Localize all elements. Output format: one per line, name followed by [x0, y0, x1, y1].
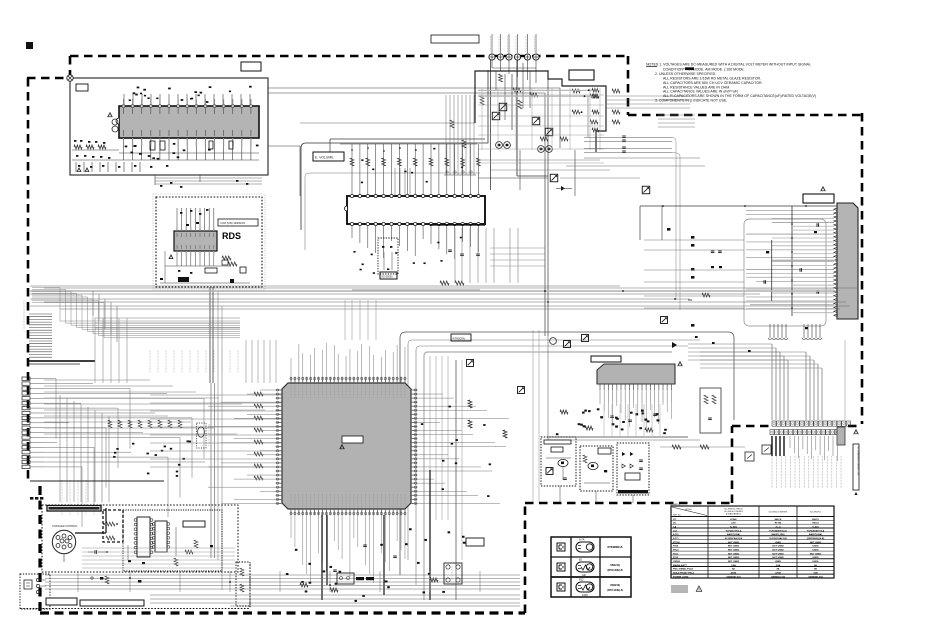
- svg-text:USED: USED: [812, 557, 818, 559]
- svg-text:ALL CAPACITORS ARE 50V CH UCV: ALL CAPACITORS ARE 50V CH UCV CERAMIC CA…: [663, 81, 763, 85]
- svg-text:UN4213): UN4213): [610, 584, 620, 587]
- svg-text:GR: GR: [582, 574, 586, 577]
- svg-text:CONDITION***TR MODE. AM: CONDITION***TR MODE. AM MODE. (:100 MODE…: [663, 67, 745, 71]
- svg-text:470M: 470M: [731, 572, 737, 575]
- svg-text:RTL2: RTL2: [673, 550, 679, 552]
- svg-text:0.8A: 0.8A: [776, 564, 781, 567]
- svg-text:USED: USED: [812, 546, 818, 548]
- svg-text:RT706: RT706: [673, 542, 680, 544]
- svg-text:TCF5060ET/V2-A: TCF5060ET/V2-A: [807, 529, 825, 532]
- svg-text:(C.201): (C.201): [730, 526, 738, 528]
- svg-text:NOT USED: NOT USED: [728, 542, 740, 544]
- svg-text:POWER CORD: POWER CORD: [673, 576, 689, 578]
- svg-text:KD-S5050: KD-S5050: [382, 275, 394, 278]
- svg-text:QAM0401-002: QAM0401-002: [808, 575, 823, 578]
- svg-text:880CK: 880CK: [775, 519, 782, 521]
- svg-text:KD-SH4105 SERIES: KD-SH4105 SERIES: [769, 511, 788, 513]
- svg-text:BA05T(.05A): BA05T(.05A): [809, 533, 822, 536]
- svg-text:CC1: CC1: [673, 530, 678, 532]
- svg-text:USED: USED: [812, 561, 818, 563]
- svg-text:(C.1): (C.1): [776, 526, 781, 528]
- svg-text:890CX: 890CX: [812, 519, 819, 521]
- svg-text:ALL RESISTANCE VALUES ARE IN O: ALL RESISTANCE VALUES ARE IN OHM.: [663, 85, 730, 89]
- svg-text:RDS: RDS: [222, 231, 241, 241]
- svg-text:NOT USED: NOT USED: [728, 561, 740, 563]
- svg-text:CA: CA: [673, 525, 677, 528]
- svg-text:REMARKS: REMARKS: [670, 503, 681, 506]
- svg-text:PNL1 PANEL POLE: PNL1 PANEL POLE: [673, 568, 694, 571]
- svg-text:470M: 470M: [775, 572, 781, 575]
- svg-text:2. UNLESS OTHERWISE SPECIFIED: 2. UNLESS OTHERWISE SPECIFIED.: [655, 72, 716, 76]
- svg-text:REF. No.: REF. No.: [673, 515, 681, 517]
- svg-text:NOT USED: NOT USED: [810, 542, 822, 544]
- svg-text:ILT71: ILT71: [673, 538, 679, 540]
- svg-text:TCF5061T/V2-A: TCF5061T/V2-A: [725, 529, 741, 532]
- svg-text:KD-SH4752: KD-SH4752: [810, 511, 822, 513]
- svg-text:MODEL: MODEL: [685, 509, 693, 511]
- svg-text:R712: R712: [673, 557, 679, 559]
- svg-text:TCF5060ET/V2-A: TCF5060ET/V2-A: [769, 529, 787, 532]
- svg-text:16M: 16M: [813, 573, 817, 575]
- svg-text:FOR (V/B) VERSION: FOR (V/B) VERSION: [221, 221, 246, 225]
- svg-text:OK: OK: [814, 569, 818, 571]
- svg-text:BA05T(.05A): BA05T(.05A): [727, 533, 740, 536]
- svg-text:RT8480DE-B: RT8480DE-B: [607, 546, 622, 549]
- svg-text:QAM0347-001: QAM0347-001: [726, 575, 741, 578]
- svg-text:NOT USED: NOT USED: [772, 546, 784, 548]
- svg-text:780CX: 780CX: [812, 523, 819, 525]
- svg-text:DC: DC: [673, 523, 677, 525]
- svg-text:CHANGER CONTROL: CHANGER CONTROL: [52, 525, 78, 528]
- svg-text:NOT USED: NOT USED: [728, 550, 740, 552]
- svg-text:3. COMPONENTS IN () INDICATE: 3. COMPONENTS IN () INDICATE NOT USE.: [655, 99, 727, 103]
- svg-text:P/TRSCRN: P/TRSCRN: [453, 337, 465, 340]
- svg-text:0.8A: 0.8A: [731, 564, 736, 567]
- svg-text:(DISASSEMBLY): (DISASSEMBLY): [726, 512, 742, 515]
- svg-text:SI-3052C4A(.5).B: SI-3052C4A(.5).B: [769, 537, 787, 540]
- svg-text:5A: 5A: [814, 564, 817, 567]
- svg-text:QAM0401-002: QAM0401-002: [771, 575, 786, 578]
- svg-text:CD CHANGER CONNECTOR: CD CHANGER CONNECTOR: [857, 446, 860, 476]
- svg-text:RT706: RT706: [775, 523, 782, 525]
- svg-text:ALL CAPACITANCE VALUES ARE IN: ALL CAPACITANCE VALUES ARE IN uF(P=uF): [663, 90, 738, 94]
- svg-text:8A: 8A: [732, 568, 735, 571]
- svg-text:ILT21: ILT21: [673, 534, 679, 536]
- svg-text:4.5V: 4.5V: [731, 522, 736, 525]
- svg-text:NOTES 1. VOLTAGES ARE DC-MEAS: NOTES 1. VOLTAGES ARE DC-MEASURED WITH A…: [646, 63, 811, 67]
- svg-text:NOT USED: NOT USED: [772, 553, 784, 555]
- svg-text:USED: USED: [775, 542, 781, 544]
- svg-text:UN4211): UN4211): [610, 564, 620, 567]
- svg-text:NOT USED: NOT USED: [810, 553, 822, 555]
- svg-text:MAINS-SW77: MAINS-SW77: [673, 564, 688, 567]
- svg-text:NOT USED: NOT USED: [728, 557, 740, 559]
- svg-text:(DTC144E)-B: (DTC144E)-B: [607, 589, 622, 592]
- svg-text:8A: 8A: [777, 568, 780, 571]
- svg-text:USED: USED: [812, 550, 818, 552]
- svg-text:SI-3052C4A(.5).B: SI-3052C4A(.5).B: [725, 537, 743, 540]
- svg-text:USED: USED: [775, 561, 781, 563]
- svg-text:R13: R13: [579, 579, 584, 582]
- svg-text:MOLD FRONT PNL2: MOLD FRONT PNL2: [673, 573, 695, 575]
- svg-text:NOT USED: NOT USED: [728, 553, 740, 555]
- svg-text:ALL R-CAPACITORS ARE SHOWN IN: ALL R-CAPACITORS ARE SHOWN IN THE FORM O…: [663, 94, 816, 98]
- svg-text:COM: COM: [582, 594, 588, 597]
- svg-text:NOT USED: NOT USED: [772, 550, 784, 552]
- svg-text:4750K: 4750K: [730, 518, 737, 521]
- svg-text:ALL RESISTORS ARE 1/16W RD MET: ALL RESISTORS ARE 1/16W RD METAL GLAZE R…: [663, 77, 761, 81]
- svg-text:CN502: CN502: [673, 561, 681, 563]
- svg-text:(DTA144E)-B: (DTA144E)-B: [607, 569, 622, 572]
- svg-text:E. VOLUME: E. VOLUME: [315, 156, 334, 160]
- svg-text:NOT USED: NOT USED: [728, 546, 740, 548]
- svg-text:(2N2230A2).(4.B): (2N2230A2).(4.B): [807, 537, 825, 540]
- svg-text:NOT USED: NOT USED: [772, 557, 784, 559]
- svg-text:A-7A: A-7A: [579, 539, 585, 542]
- svg-text:(C.B1): (C.B1): [812, 526, 819, 528]
- svg-text:R706: R706: [673, 546, 679, 548]
- svg-text:R711: R711: [673, 553, 679, 555]
- svg-text:BA05T(.05A): BA05T(.05A): [771, 533, 784, 536]
